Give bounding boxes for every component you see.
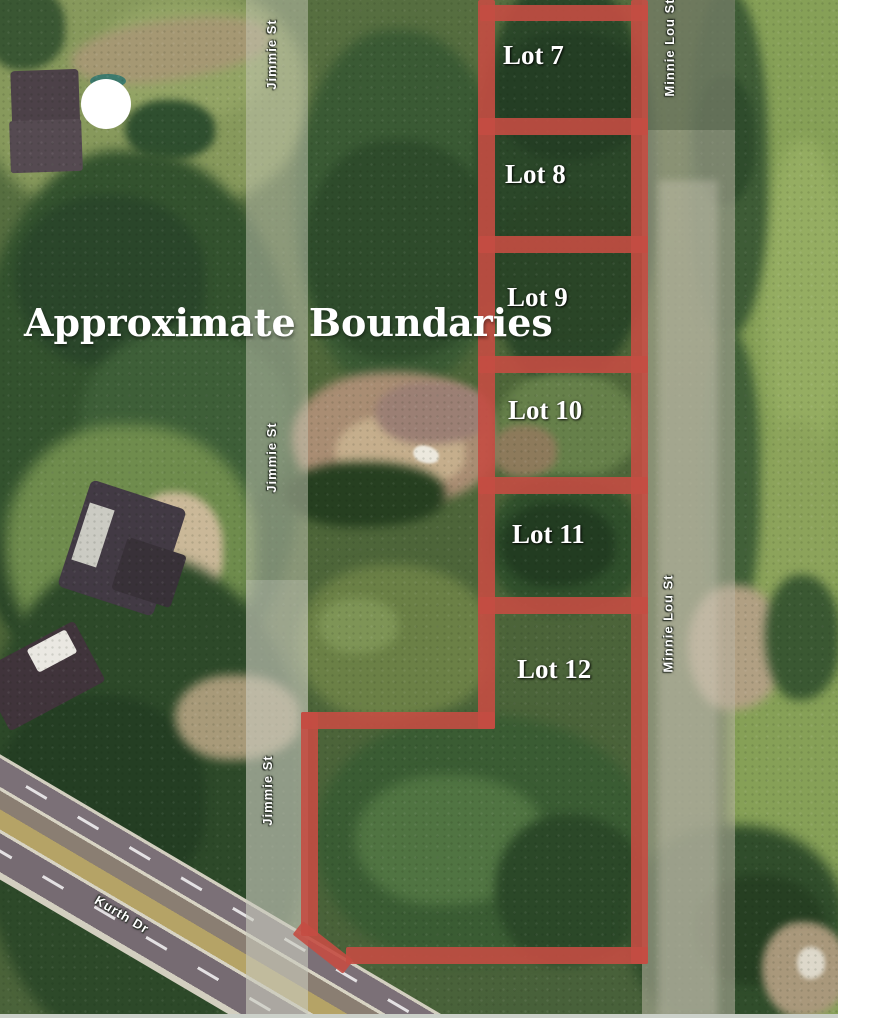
boundary-lot10-lot11-line bbox=[478, 477, 648, 494]
street-label-jimmie-lower: Jimmie St bbox=[260, 743, 275, 838]
white-margin bbox=[838, 0, 883, 1024]
dirt-clearing bbox=[375, 382, 490, 444]
street-label-minnie-lou-top: Minnie Lou St bbox=[662, 0, 677, 105]
boundary-lot9-lot10-line bbox=[478, 356, 648, 373]
location-marker-circle-icon bbox=[81, 79, 131, 129]
tree-cluster bbox=[765, 575, 838, 700]
boundary-top-line bbox=[480, 5, 648, 21]
debris bbox=[797, 947, 825, 979]
street-label-minnie-lou-middle: Minnie Lou St bbox=[661, 564, 676, 684]
boundary-lot7-lot8-line bbox=[478, 118, 648, 135]
boundary-lot8-lot9-line bbox=[478, 236, 648, 253]
dirt-clearing bbox=[492, 425, 557, 477]
building-roof bbox=[9, 119, 83, 173]
lot-label-11: Lot 11 bbox=[512, 521, 585, 548]
boundary-lot12-south-line bbox=[346, 947, 648, 964]
tree-cluster bbox=[495, 815, 645, 965]
boundary-lot11-lot12-line bbox=[478, 597, 648, 614]
boundary-lot12-west-line bbox=[301, 712, 318, 936]
road-highlight bbox=[246, 580, 308, 1018]
lot-label-8: Lot 8 bbox=[505, 161, 566, 188]
tree-shadow bbox=[285, 462, 445, 527]
grass-field bbox=[762, 140, 838, 460]
lot-label-12: Lot 12 bbox=[517, 656, 591, 683]
approximate-boundaries-title: Approximate Boundaries bbox=[24, 302, 553, 344]
street-label-jimmie-top: Jimmie St bbox=[264, 7, 279, 102]
listing-photo: Jimmie St Jimmie St Jimmie St Minnie Lou… bbox=[0, 0, 883, 1024]
road-shadow bbox=[642, 0, 735, 130]
street-label-jimmie-middle: Jimmie St bbox=[264, 410, 279, 505]
satellite-map: Jimmie St Jimmie St Jimmie St Minnie Lou… bbox=[0, 0, 838, 1018]
boundary-lot12-west-extension-line bbox=[301, 712, 495, 729]
grass-field bbox=[318, 598, 398, 653]
lot-label-10: Lot 10 bbox=[508, 397, 582, 424]
imagery-bottom-edge bbox=[0, 1014, 838, 1018]
lot-label-7: Lot 7 bbox=[503, 42, 564, 69]
